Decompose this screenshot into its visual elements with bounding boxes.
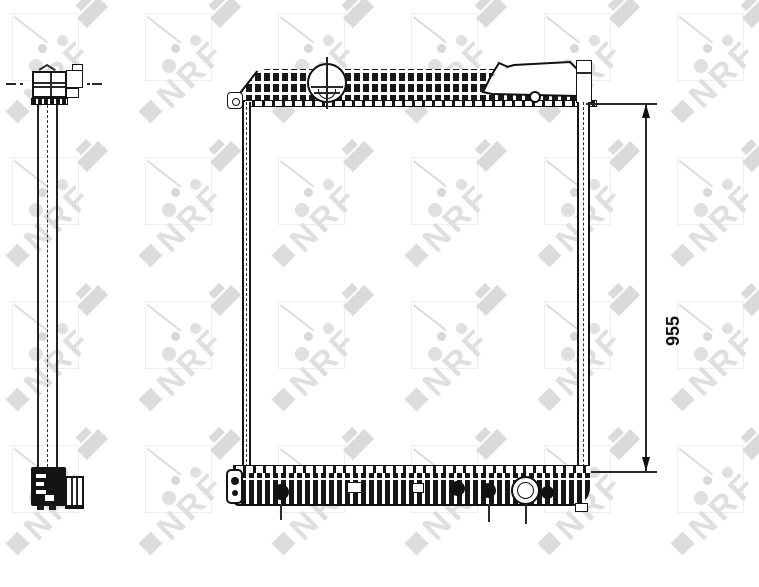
watermark-dot xyxy=(171,188,180,197)
slot xyxy=(412,483,424,493)
watermark-box xyxy=(145,13,212,81)
outlet-port xyxy=(511,476,540,505)
watermark-dot xyxy=(561,203,575,217)
watermark-text: NRF xyxy=(134,449,249,564)
watermark-dot xyxy=(323,35,334,46)
nrf-watermark-tile: NRF xyxy=(278,301,345,369)
watermark-needle xyxy=(679,448,713,475)
bracket-rib xyxy=(71,478,73,505)
watermark-plug-shape xyxy=(735,134,759,172)
watermark-blob xyxy=(271,243,295,267)
watermark-dot xyxy=(722,179,733,190)
watermark-needle xyxy=(413,304,447,331)
stub xyxy=(488,504,490,522)
watermark-blob xyxy=(138,99,162,123)
bracket-base xyxy=(65,507,84,509)
centerline-dot xyxy=(20,83,23,85)
side-view-top-tank xyxy=(32,71,67,98)
end-cap-hole xyxy=(232,490,238,496)
watermark-plug-shape xyxy=(735,0,759,28)
foot xyxy=(37,505,44,510)
watermark-dot xyxy=(323,179,334,190)
centerline-right xyxy=(92,83,102,85)
watermark-box xyxy=(278,157,345,225)
watermark-needle xyxy=(679,304,713,331)
nrf-watermark-tile: NRF xyxy=(677,13,744,81)
watermark-dot xyxy=(589,467,600,478)
dimension-arrow-top xyxy=(642,104,650,118)
watermark-text: NRF xyxy=(666,449,759,564)
watermark-dot xyxy=(304,44,313,53)
watermark-blob xyxy=(5,387,29,411)
watermark-blob xyxy=(670,387,694,411)
watermark-blob xyxy=(670,99,694,123)
cap-center-line xyxy=(50,73,52,96)
watermark-dot xyxy=(171,476,180,485)
watermark-needle xyxy=(413,16,447,43)
watermark-plug-shape xyxy=(203,278,241,316)
watermark-dot xyxy=(190,323,201,334)
foot xyxy=(49,505,56,510)
watermark-dot xyxy=(703,188,712,197)
watermark-box xyxy=(677,301,744,369)
watermark-blob xyxy=(537,243,561,267)
watermark-dot xyxy=(57,323,68,334)
watermark-blob xyxy=(138,531,162,555)
watermark-plug-shape xyxy=(70,422,108,460)
watermark-dot xyxy=(722,467,733,478)
watermark-dot xyxy=(589,179,600,190)
watermark-dot xyxy=(428,347,442,361)
watermark-needle xyxy=(147,448,181,475)
cap-peak-line xyxy=(47,64,56,71)
watermark-needle xyxy=(147,304,181,331)
watermark-text: NRF xyxy=(1,161,116,276)
watermark-blob xyxy=(5,99,29,123)
watermark-dot xyxy=(589,35,600,46)
watermark-dot xyxy=(561,347,575,361)
dimension-arrow-bottom xyxy=(642,457,650,471)
watermark-dot xyxy=(190,179,201,190)
dimension-label: 955 xyxy=(663,309,683,353)
watermark-dot xyxy=(703,44,712,53)
nrf-watermark-tile: NRF xyxy=(677,445,744,513)
watermark-text: NRF xyxy=(267,161,382,276)
watermark-dot xyxy=(323,323,334,334)
watermark-text: NRF xyxy=(400,161,515,276)
watermark-plug-shape xyxy=(336,278,374,316)
watermark-box xyxy=(145,301,212,369)
nrf-watermark-tile: NRF xyxy=(145,301,212,369)
watermark-dot xyxy=(722,35,733,46)
watermark-needle xyxy=(679,16,713,43)
watermark-text: NRF xyxy=(533,305,648,420)
nrf-watermark-tile: NRF xyxy=(411,157,478,225)
watermark-text: NRF xyxy=(1,449,116,564)
watermark-box xyxy=(145,445,212,513)
side-header-strip xyxy=(31,98,68,105)
watermark-plug-shape xyxy=(602,278,640,316)
watermark-plug-shape xyxy=(70,134,108,172)
inlet-bracket xyxy=(66,70,83,88)
watermark-needle xyxy=(546,16,580,43)
bracket-line xyxy=(577,72,591,74)
plug xyxy=(450,481,465,496)
watermark-dot xyxy=(703,476,712,485)
watermark-dot xyxy=(570,44,579,53)
filler-cap-centerline xyxy=(326,57,328,109)
core-tubes xyxy=(37,105,58,467)
watermark-box xyxy=(677,157,744,225)
watermark-blob xyxy=(537,387,561,411)
watermark-dot xyxy=(171,332,180,341)
watermark-dot xyxy=(722,323,733,334)
watermark-box xyxy=(278,301,345,369)
watermark-text: NRF xyxy=(533,161,648,276)
watermark-needle xyxy=(14,16,48,43)
watermark-plug-shape xyxy=(336,422,374,460)
watermark-blob xyxy=(404,531,428,555)
watermark-dot xyxy=(694,59,708,73)
watermark-dot xyxy=(694,491,708,505)
watermark-needle xyxy=(280,160,314,187)
watermark-text: NRF xyxy=(134,17,249,132)
watermark-text: NRF xyxy=(134,305,249,420)
watermark-dot xyxy=(295,203,309,217)
side-view-bottom-tank xyxy=(31,467,66,506)
watermark-blob xyxy=(404,387,428,411)
duct-port xyxy=(530,92,540,102)
mounting-bracket xyxy=(65,476,84,507)
bottom-left-end-cap xyxy=(226,469,243,504)
outlet-stub xyxy=(575,503,588,512)
outlet-port-inner xyxy=(517,482,534,499)
watermark-needle xyxy=(147,16,181,43)
nrf-watermark-tile: NRF xyxy=(677,157,744,225)
nrf-watermark-tile: NRF xyxy=(145,157,212,225)
watermark-needle xyxy=(280,16,314,43)
watermark-dot xyxy=(437,332,446,341)
drain-plug xyxy=(273,484,289,500)
watermark-dot xyxy=(694,203,708,217)
core-left-frame xyxy=(242,102,251,472)
watermark-needle xyxy=(546,160,580,187)
watermark-dot xyxy=(162,491,176,505)
watermark-dot xyxy=(162,203,176,217)
frame-centerline xyxy=(246,102,247,472)
watermark-dot xyxy=(456,35,467,46)
top-right-bracket xyxy=(576,60,592,103)
watermark-plug-shape xyxy=(735,422,759,460)
watermark-dot xyxy=(171,44,180,53)
drain-stub xyxy=(280,504,282,520)
watermark-dot xyxy=(57,35,68,46)
watermark-needle xyxy=(280,304,314,331)
watermark-dot xyxy=(57,179,68,190)
watermark-blob xyxy=(138,387,162,411)
slot xyxy=(36,482,44,486)
watermark-plug-shape xyxy=(469,0,507,28)
watermark-blob xyxy=(271,531,295,555)
watermark-plug-shape xyxy=(469,422,507,460)
watermark-box xyxy=(145,157,212,225)
watermark-plug-shape xyxy=(602,422,640,460)
watermark-dot xyxy=(456,323,467,334)
slot xyxy=(36,490,46,494)
watermark-plug-shape xyxy=(469,278,507,316)
watermark-needle xyxy=(546,304,580,331)
watermark-dot xyxy=(304,188,313,197)
radiator-technical-drawing: NRFNRFNRFNRFNRFNRFNRFNRFNRFNRFNRFNRFNRFN… xyxy=(0,0,759,587)
slot xyxy=(36,474,46,478)
watermark-dot xyxy=(428,203,442,217)
dimension-line xyxy=(645,103,647,472)
watermark-plug-shape xyxy=(602,0,640,28)
plug xyxy=(541,486,554,499)
tube-centerline xyxy=(47,105,48,467)
nrf-watermark-tile: NRF xyxy=(278,157,345,225)
watermark-text: NRF xyxy=(134,161,249,276)
watermark-dot xyxy=(694,347,708,361)
watermark-blob xyxy=(670,531,694,555)
watermark-box xyxy=(411,301,478,369)
watermark-plug-shape xyxy=(70,278,108,316)
watermark-box xyxy=(677,13,744,81)
watermark-blob xyxy=(5,243,29,267)
slot xyxy=(45,495,54,501)
centerline-dot xyxy=(87,83,90,85)
watermark-plug-shape xyxy=(735,278,759,316)
watermark-plug-shape xyxy=(336,0,374,28)
watermark-blob xyxy=(138,243,162,267)
watermark-dot xyxy=(703,332,712,341)
watermark-blob xyxy=(670,243,694,267)
frame-centerline xyxy=(583,102,584,472)
watermark-dot xyxy=(162,347,176,361)
centerline-left xyxy=(6,83,16,85)
watermark-plug-shape xyxy=(70,0,108,28)
watermark-dot xyxy=(437,44,446,53)
watermark-blob xyxy=(271,387,295,411)
watermark-blob xyxy=(404,243,428,267)
watermark-dot xyxy=(437,188,446,197)
watermark-text: NRF xyxy=(666,17,759,132)
watermark-text: NRF xyxy=(400,305,515,420)
core-right-frame xyxy=(577,102,590,472)
nrf-watermark-tile: NRF xyxy=(145,13,212,81)
watermark-dot xyxy=(162,59,176,73)
watermark-text: NRF xyxy=(666,161,759,276)
watermark-plug-shape xyxy=(203,134,241,172)
watermark-box xyxy=(411,157,478,225)
watermark-dot xyxy=(38,44,47,53)
watermark-plug-shape xyxy=(336,134,374,172)
watermark-plug-shape xyxy=(203,422,241,460)
bracket-rib xyxy=(76,478,78,505)
band-split-line xyxy=(233,478,590,480)
watermark-blob xyxy=(537,531,561,555)
watermark-text: NRF xyxy=(267,305,382,420)
bottom-tank-top-band xyxy=(233,465,590,473)
slot xyxy=(347,482,362,493)
inlet-bracket-lower xyxy=(66,88,79,98)
watermark-needle xyxy=(147,160,181,187)
pin-hole xyxy=(232,98,240,106)
nrf-watermark-tile: NRF xyxy=(411,301,478,369)
watermark-dot xyxy=(190,35,201,46)
stub xyxy=(525,503,527,524)
watermark-plug-shape xyxy=(469,134,507,172)
watermark-plug-shape xyxy=(203,0,241,28)
watermark-plug-shape xyxy=(602,134,640,172)
nrf-watermark-tile: NRF xyxy=(677,301,744,369)
watermark-dot xyxy=(295,347,309,361)
extension-line-bottom xyxy=(591,471,657,473)
watermark-dot xyxy=(304,332,313,341)
watermark-blob xyxy=(5,531,29,555)
plug xyxy=(481,483,496,498)
watermark-box xyxy=(677,445,744,513)
watermark-dot xyxy=(456,179,467,190)
watermark-text: NRF xyxy=(1,305,116,420)
top-left-pin xyxy=(227,92,243,109)
end-cap-hole xyxy=(231,477,239,485)
watermark-dot xyxy=(190,467,201,478)
watermark-needle xyxy=(413,160,447,187)
watermark-dot xyxy=(589,323,600,334)
watermark-needle xyxy=(679,160,713,187)
nrf-watermark-tile: NRF xyxy=(145,445,212,513)
